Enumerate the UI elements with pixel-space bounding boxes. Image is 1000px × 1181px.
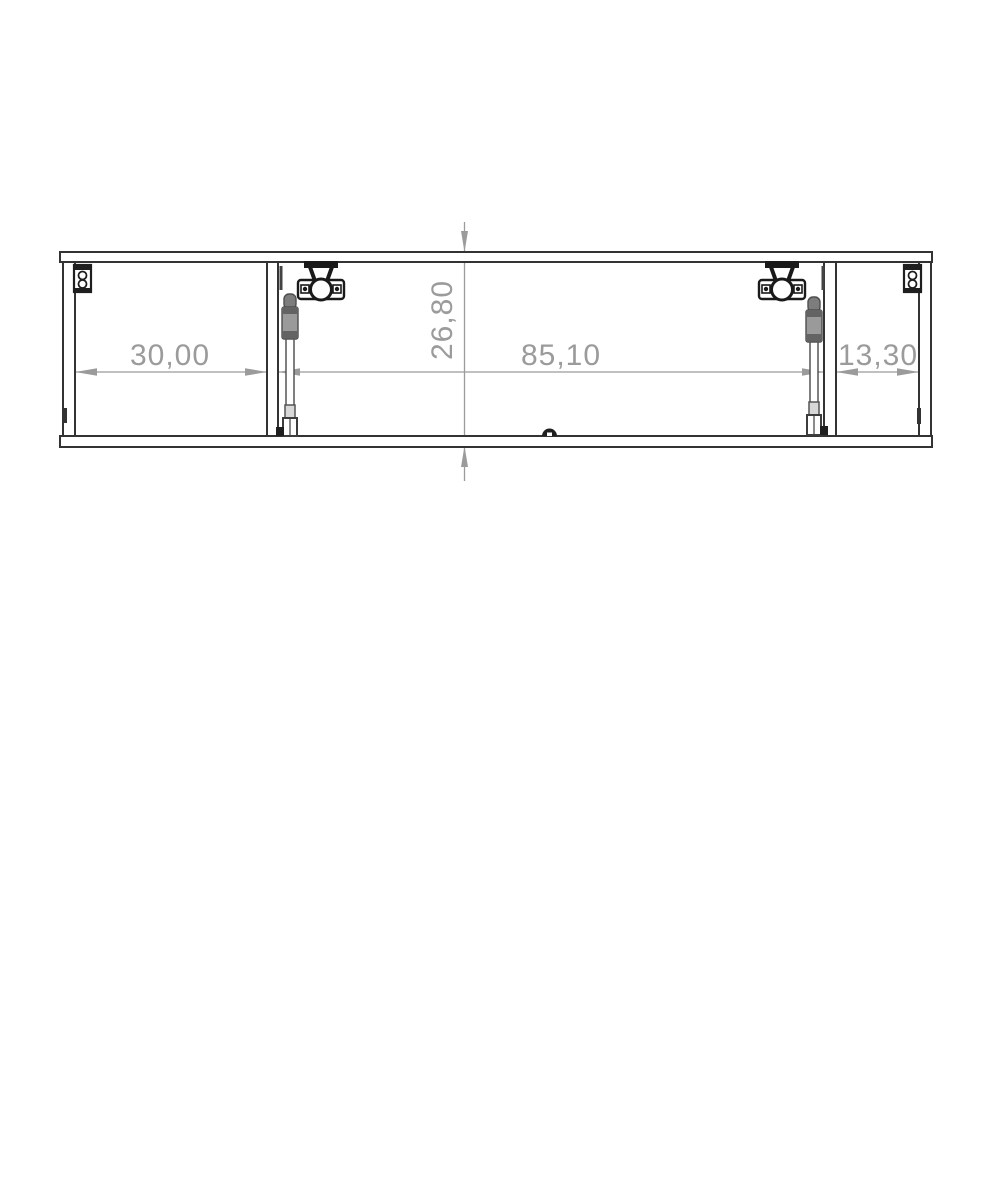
dimension-label-left-compartment: 30,00 [70, 339, 270, 373]
left-panel-fixing-mark [63, 408, 67, 423]
technical-drawing-canvas [0, 0, 1000, 1181]
dimension-label-right-compartment: 13,30 [778, 339, 978, 373]
wall-bracket-left [74, 265, 91, 292]
wall-bracket-right [904, 265, 921, 292]
concealed-hinge-left [298, 261, 344, 300]
dim-arrow-top [461, 231, 468, 252]
dimension-label-cabinet-height: 26,80 [426, 220, 460, 420]
dimension-label-middle-compartment: 85,10 [461, 339, 661, 373]
strut-mount-mark-right [822, 266, 825, 290]
right-panel-fixing-mark [917, 408, 921, 424]
bottom-panel [60, 436, 932, 447]
dim-arrow-bottom [461, 446, 468, 467]
technical-drawing-page: 30,00 26,80 85,10 13,30 [0, 0, 1000, 1181]
magnetic-catch [542, 429, 557, 437]
top-panel [60, 252, 932, 262]
gas-strut-left [276, 294, 298, 436]
strut-mount-mark-left [280, 266, 283, 290]
concealed-hinge-right [759, 261, 805, 300]
